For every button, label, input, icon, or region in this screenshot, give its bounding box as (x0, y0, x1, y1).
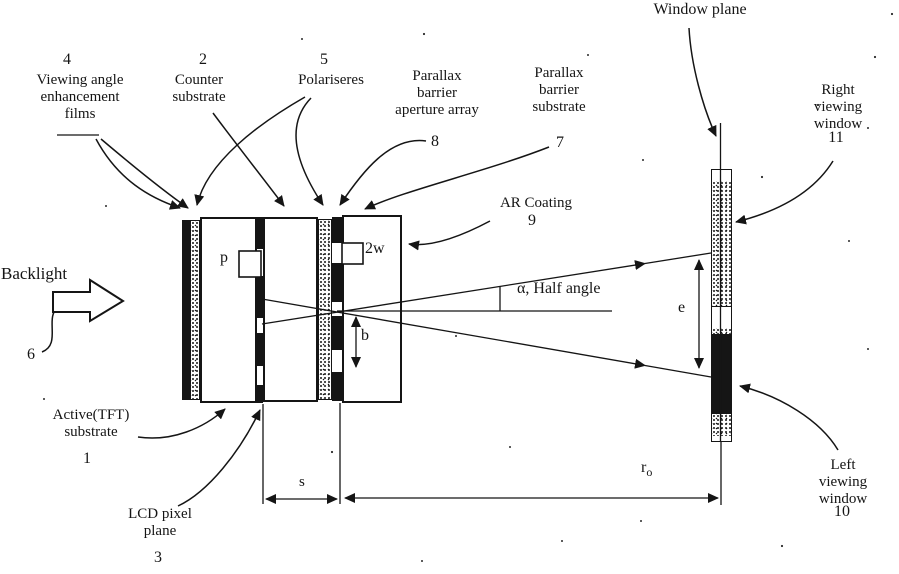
label-window-plane: Window plane (653, 1, 746, 18)
ref-num-11: 11 (828, 129, 843, 147)
ref-num-1: 1 (83, 450, 91, 468)
ref-num-8: 8 (431, 133, 439, 151)
ref-num-2: 2 (199, 51, 207, 69)
left-polariser-strip (190, 220, 200, 400)
label-right-viewing-window: Right viewing window (808, 82, 869, 133)
right-polariser-strip (318, 219, 332, 400)
label-viewing-angle-films: Viewing angle enhancement films (37, 72, 124, 123)
tft-substrate-slab (200, 217, 257, 403)
label-backlight: Backlight (1, 265, 67, 282)
backlight-arrow (53, 280, 123, 321)
viewing-angle-film-strip (182, 220, 190, 400)
label-counter-substrate: Counter substrate (172, 72, 225, 106)
right-viewing-window-zone (712, 181, 731, 307)
viewing-window-column (711, 169, 732, 442)
window-stipple-band (712, 414, 731, 436)
parallax-barrier-display-figure: Window plane 4 Viewing angle enhancement… (0, 0, 899, 574)
dim-label-e: e (678, 299, 685, 317)
ref-num-4: 4 (63, 51, 71, 69)
ref-num-10: 10 (834, 503, 850, 521)
label-tft-substrate: Active(TFT) substrate (53, 407, 130, 441)
ref-num-9: 9 (528, 212, 536, 230)
left-viewing-window-zone (712, 334, 731, 414)
dim-label-b: b (361, 327, 369, 345)
parallax-barrier-strip (332, 217, 342, 401)
dim-label-ro: ro (641, 459, 652, 480)
label-ar-coating: AR Coating (500, 195, 572, 212)
barrier-aperture (332, 243, 342, 263)
dim-label-2w: 2w (365, 240, 385, 258)
window-gap-zone (712, 307, 731, 328)
label-barrier-substrate: Parallax barrier substrate (532, 65, 585, 116)
label-half-angle: α, Half angle (517, 280, 600, 298)
barrier-aperture (332, 302, 342, 316)
label-left-viewing-window: Left viewing window (815, 457, 871, 508)
label-polarisers: Polariseres (298, 72, 364, 89)
dim-label-p: p (220, 249, 228, 267)
ref-num-6: 6 (27, 346, 35, 364)
label-lcd-pixel-plane: LCD pixel plane (128, 506, 192, 540)
barrier-aperture (332, 350, 342, 372)
counter-substrate-slab (263, 217, 318, 402)
dim-label-ro-sub: o (646, 465, 652, 479)
label-aperture-array: Parallax barrier aperture array (395, 68, 479, 119)
dim-label-s: s (299, 474, 305, 491)
ref-num-5: 5 (320, 51, 328, 69)
ref-num-7: 7 (556, 134, 564, 152)
ref-num-3: 3 (154, 549, 162, 567)
